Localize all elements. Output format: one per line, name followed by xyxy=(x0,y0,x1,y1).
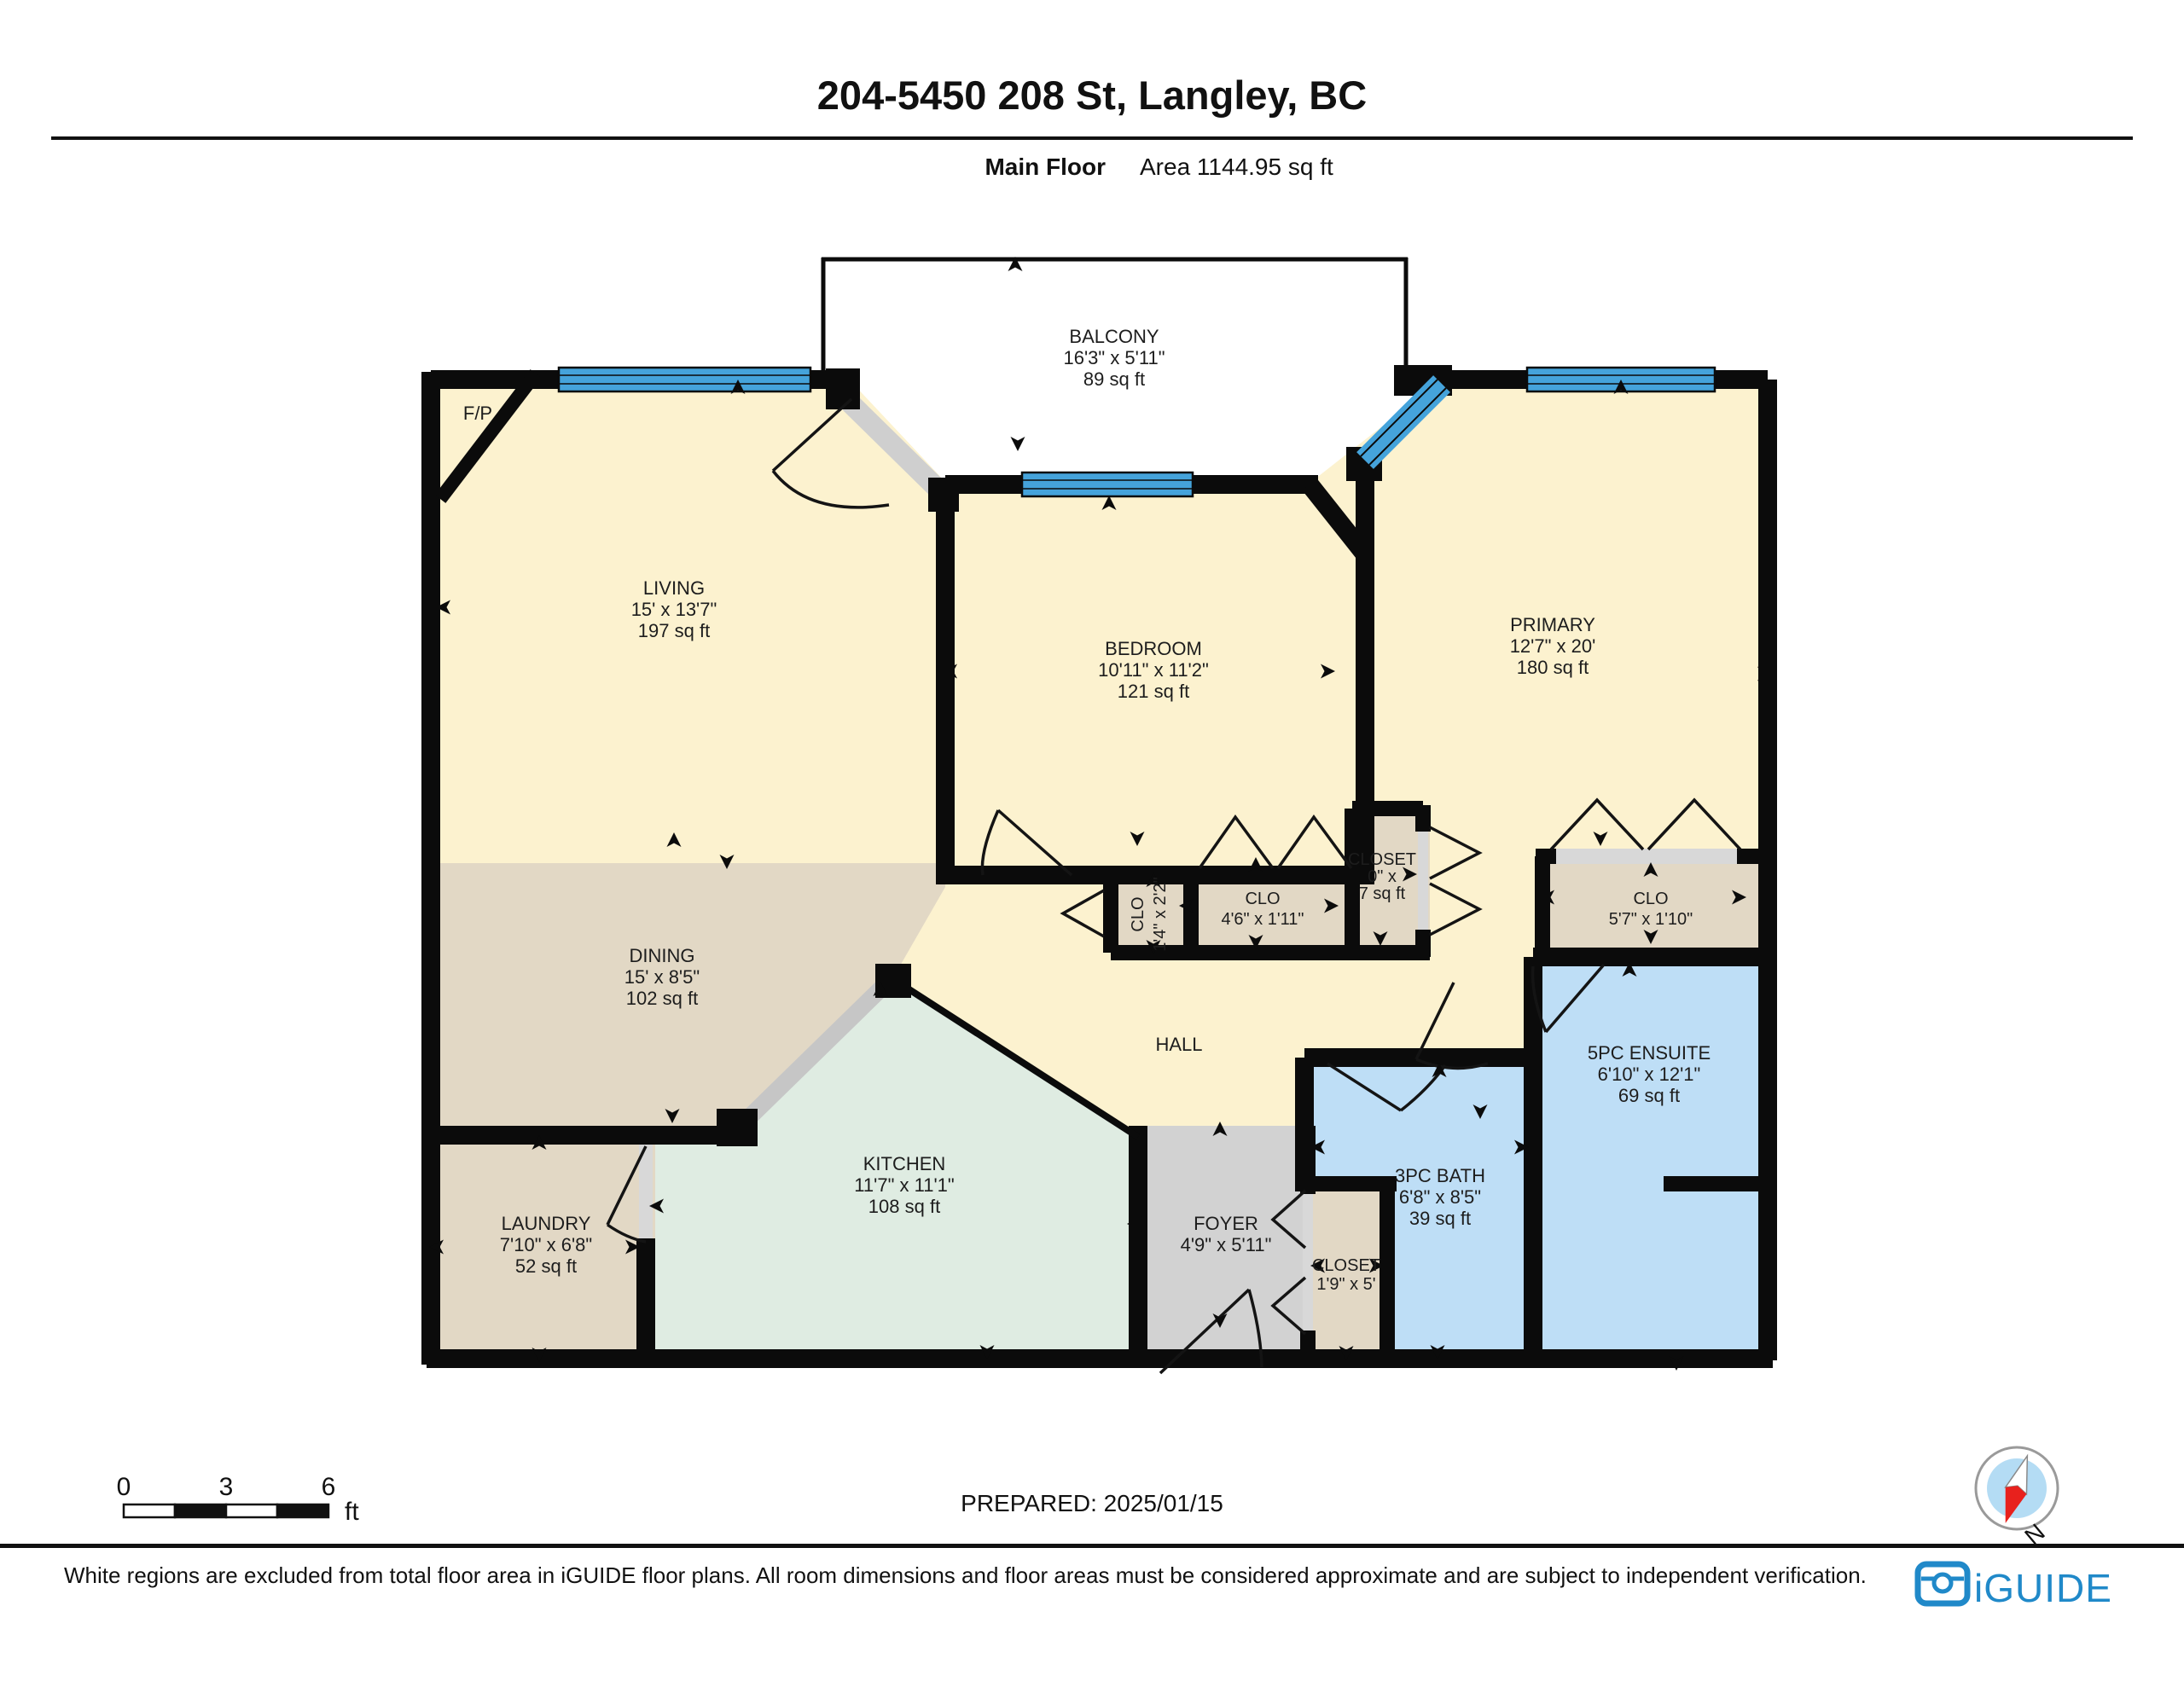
svg-text:LIVING: LIVING xyxy=(643,577,705,599)
scale-unit: ft xyxy=(345,1498,359,1526)
footer-rule xyxy=(0,1544,2184,1548)
kitchen-label: KITCHEN 11'7" x 11'1" 108 sq ft xyxy=(854,1153,954,1217)
floor-label: Main Floor xyxy=(985,154,1106,180)
iguide-camera-icon xyxy=(1918,1564,1967,1603)
room-fills xyxy=(431,258,1768,1368)
svg-text:1'4" x 2'2": 1'4" x 2'2" xyxy=(1151,877,1170,951)
iguide-logo: iGUIDE xyxy=(1918,1564,2112,1610)
living-window xyxy=(559,368,810,391)
svg-text:5PC ENSUITE: 5PC ENSUITE xyxy=(1588,1042,1711,1064)
svg-text:CLOSET: CLOSET xyxy=(1312,1256,1380,1275)
svg-text:7'10" x 6'8": 7'10" x 6'8" xyxy=(500,1234,592,1255)
svg-text:4'9" x 5'11": 4'9" x 5'11" xyxy=(1181,1234,1272,1255)
svg-text:LAUNDRY: LAUNDRY xyxy=(502,1213,591,1234)
header-rule xyxy=(51,136,2133,140)
svg-text:6'10" x 12'1": 6'10" x 12'1" xyxy=(1598,1064,1701,1085)
scale-tick-3: 3 xyxy=(219,1473,234,1501)
bedroom-window xyxy=(1022,472,1193,496)
svg-text:1'9" x 5': 1'9" x 5' xyxy=(1316,1275,1375,1294)
svg-text:6'8" x 8'5": 6'8" x 8'5" xyxy=(1399,1186,1481,1208)
floorplan-page: 204-5450 208 St, Langley, BC Main Floor … xyxy=(0,0,2184,1687)
svg-text:CLO: CLO xyxy=(1633,890,1668,908)
svg-text:3PC BATH: 3PC BATH xyxy=(1395,1165,1485,1186)
svg-text:CLO: CLO xyxy=(1245,890,1280,908)
svg-text:11'7" x 11'1": 11'7" x 11'1" xyxy=(854,1174,954,1196)
floorplan-canvas: 204-5450 208 St, Langley, BC Main Floor … xyxy=(0,0,2184,1687)
living-label: LIVING 15' x 13'7" 197 sq ft xyxy=(631,577,717,641)
svg-text:10'11" x 11'2": 10'11" x 11'2" xyxy=(1098,659,1209,681)
fireplace-label: F/P xyxy=(463,403,492,424)
prepared-date: PREPARED: 2025/01/15 xyxy=(961,1490,1223,1516)
hall-label: HALL xyxy=(1155,1034,1202,1055)
svg-text:39 sq ft: 39 sq ft xyxy=(1409,1208,1471,1229)
header: 204-5450 208 St, Langley, BC Main Floor … xyxy=(51,72,2133,180)
svg-text:5'7" x 1'10": 5'7" x 1'10" xyxy=(1609,910,1693,929)
scale-tick-6: 6 xyxy=(322,1473,336,1501)
svg-text:16'3" x 5'11": 16'3" x 5'11" xyxy=(1063,347,1165,368)
svg-text:197 sq ft: 197 sq ft xyxy=(638,620,710,641)
scale-tick-0: 0 xyxy=(117,1473,131,1501)
svg-text:KITCHEN: KITCHEN xyxy=(863,1153,946,1174)
svg-text:CLO: CLO xyxy=(1129,896,1147,931)
svg-text:108 sq ft: 108 sq ft xyxy=(868,1196,940,1217)
scale-bar: 0 3 6 ft xyxy=(117,1473,360,1526)
svg-text:7 sq ft: 7 sq ft xyxy=(1359,884,1406,903)
svg-text:12'7" x 20': 12'7" x 20' xyxy=(1510,635,1596,657)
svg-text:15' x 8'5": 15' x 8'5" xyxy=(624,966,700,988)
svg-text:102 sq ft: 102 sq ft xyxy=(626,988,698,1009)
svg-text:0" x: 0" x xyxy=(1368,867,1397,886)
footer: White regions are excluded from total fl… xyxy=(0,1544,2184,1610)
svg-text:BEDROOM: BEDROOM xyxy=(1105,638,1202,659)
disclaimer-text: White regions are excluded from total fl… xyxy=(64,1562,1867,1588)
svg-text:4'6" x 1'11": 4'6" x 1'11" xyxy=(1221,910,1304,929)
svg-text:180 sq ft: 180 sq ft xyxy=(1517,657,1589,678)
svg-text:FOYER: FOYER xyxy=(1194,1213,1258,1234)
svg-text:CLOSET: CLOSET xyxy=(1348,850,1416,869)
svg-text:DINING: DINING xyxy=(630,945,695,966)
foyer-closet-label: CLOSET 1'9" x 5' xyxy=(1312,1256,1380,1294)
svg-text:15' x 13'7": 15' x 13'7" xyxy=(631,599,717,620)
svg-text:52 sq ft: 52 sq ft xyxy=(515,1255,577,1277)
svg-text:PRIMARY: PRIMARY xyxy=(1510,614,1595,635)
svg-text:BALCONY: BALCONY xyxy=(1069,326,1159,347)
svg-text:89 sq ft: 89 sq ft xyxy=(1083,368,1145,390)
primary-label: PRIMARY 12'7" x 20' 180 sq ft xyxy=(1510,614,1596,678)
foyer-label: FOYER 4'9" x 5'11" xyxy=(1181,1213,1272,1255)
iguide-brand-text: iGUIDE xyxy=(1974,1566,2112,1610)
floor-area-label: Area 1144.95 sq ft xyxy=(1140,154,1333,180)
dining-label: DINING 15' x 8'5" 102 sq ft xyxy=(624,945,700,1009)
svg-text:69 sq ft: 69 sq ft xyxy=(1618,1085,1680,1106)
ensuite-room xyxy=(1533,957,1768,1368)
page-title: 204-5450 208 St, Langley, BC xyxy=(817,72,1367,118)
svg-text:121 sq ft: 121 sq ft xyxy=(1118,681,1189,702)
compass-icon: N xyxy=(1976,1447,2058,1550)
